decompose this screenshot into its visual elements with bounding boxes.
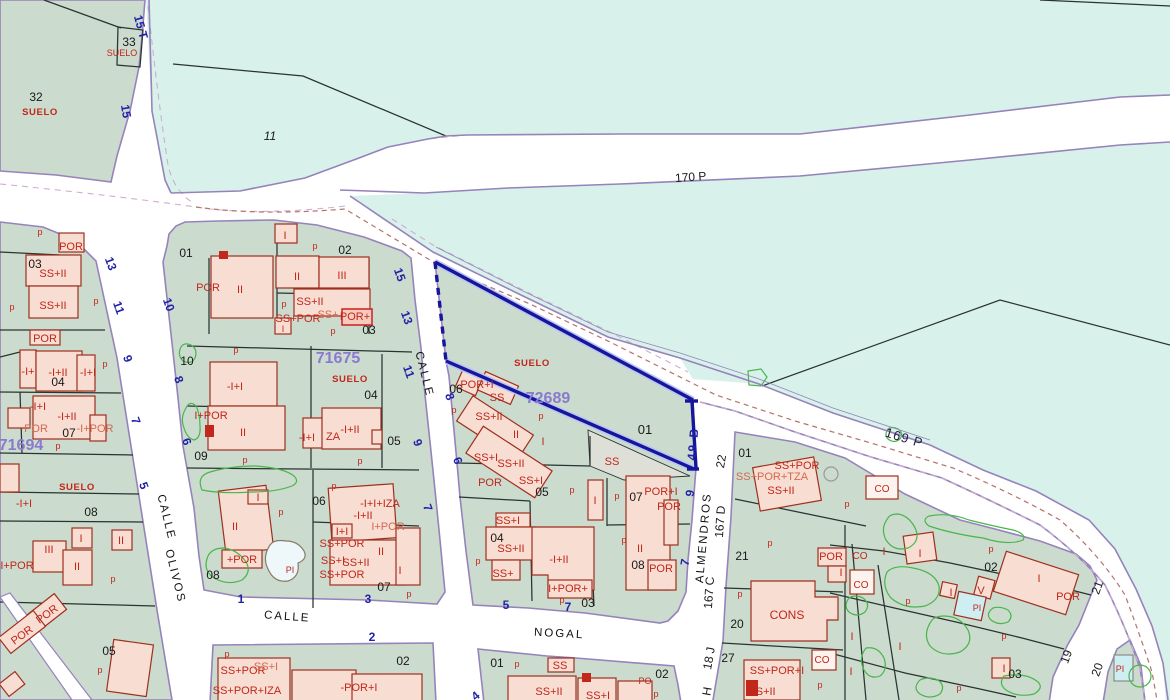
svg-text:-POR+I: -POR+I <box>341 682 378 694</box>
svg-text:p: p <box>817 680 822 690</box>
svg-text:167 C: 167 C <box>701 576 717 609</box>
svg-text:I: I <box>79 533 82 545</box>
svg-text:POR+: POR+ <box>340 311 370 323</box>
svg-text:p: p <box>621 535 626 545</box>
svg-text:SS+II: SS+II <box>342 557 369 569</box>
svg-text:-I+II: -I+II <box>549 554 568 566</box>
svg-text:p: p <box>406 589 411 599</box>
svg-text:72689: 72689 <box>526 390 571 407</box>
svg-text:p: p <box>988 544 993 554</box>
svg-text:p: p <box>956 683 961 693</box>
svg-text:01: 01 <box>490 656 504 670</box>
svg-text:33: 33 <box>122 35 136 49</box>
svg-text:I: I <box>1037 573 1040 585</box>
svg-text:p: p <box>357 456 362 466</box>
svg-text:SS+: SS+ <box>317 309 338 321</box>
svg-text:+POR: +POR <box>227 554 257 566</box>
svg-text:SUELO: SUELO <box>59 482 95 493</box>
svg-text:I: I <box>256 492 259 504</box>
svg-text:SS+: SS+ <box>492 568 513 580</box>
svg-text:71694: 71694 <box>0 437 43 454</box>
svg-text:II: II <box>240 427 246 439</box>
svg-text:22: 22 <box>713 453 729 469</box>
svg-text:-I+I: -I+I <box>227 381 243 393</box>
svg-text:15: 15 <box>118 104 134 120</box>
svg-text:SS+POR+I: SS+POR+I <box>750 665 804 677</box>
svg-text:p: p <box>224 649 229 659</box>
svg-text:03: 03 <box>581 596 595 610</box>
svg-text:I+POR: I+POR <box>371 521 404 533</box>
svg-text:p: p <box>97 665 102 675</box>
svg-text:I: I <box>282 324 285 334</box>
svg-text:NOGAL: NOGAL <box>534 627 585 642</box>
svg-text:POR: POR <box>24 423 48 435</box>
svg-text:02: 02 <box>655 667 669 681</box>
svg-text:9: 9 <box>120 353 136 364</box>
svg-text:SUELO: SUELO <box>514 358 550 369</box>
svg-text:PI: PI <box>286 565 295 575</box>
svg-text:p: p <box>93 296 98 306</box>
svg-text:POR: POR <box>819 551 843 563</box>
svg-text:07: 07 <box>377 580 391 594</box>
svg-text:03: 03 <box>1008 667 1022 681</box>
svg-text:p: p <box>514 659 519 669</box>
svg-text:SS: SS <box>490 392 505 404</box>
svg-text:11: 11 <box>264 129 276 143</box>
svg-text:II: II <box>232 521 238 533</box>
svg-text:71675: 71675 <box>316 350 361 367</box>
svg-text:I: I <box>918 548 921 560</box>
svg-text:170 P: 170 P <box>675 169 707 185</box>
svg-text:II: II <box>637 543 643 555</box>
svg-text:I+POR+: I+POR+ <box>548 583 588 595</box>
svg-text:III: III <box>44 544 53 556</box>
svg-text:11: 11 <box>110 299 128 316</box>
svg-text:POR: POR <box>649 563 673 575</box>
svg-text:I: I <box>541 436 544 448</box>
svg-text:09: 09 <box>194 449 208 463</box>
svg-text:p: p <box>330 326 335 336</box>
svg-text:I: I <box>839 567 842 579</box>
svg-text:2: 2 <box>369 630 376 644</box>
svg-text:-I+II: -I+II <box>48 367 67 379</box>
svg-text:p: p <box>767 538 772 548</box>
svg-text:I: I <box>882 546 885 558</box>
svg-text:PI: PI <box>1116 664 1125 674</box>
svg-text:1: 1 <box>238 592 245 606</box>
svg-text:p: p <box>1001 631 1006 641</box>
svg-text:p: p <box>331 481 336 491</box>
svg-text:I: I <box>398 565 401 577</box>
svg-text:CO: CO <box>854 580 869 591</box>
svg-text:p: p <box>569 485 574 495</box>
svg-text:20: 20 <box>1088 661 1106 679</box>
svg-text:05: 05 <box>535 485 549 499</box>
svg-text:SS+II: SS+II <box>497 458 524 470</box>
svg-text:PO: PO <box>638 676 651 686</box>
svg-text:04: 04 <box>364 388 378 402</box>
svg-text:SS+II: SS+II <box>296 296 323 308</box>
svg-text:I: I <box>849 666 852 678</box>
svg-text:I: I <box>593 495 596 507</box>
svg-text:3: 3 <box>365 592 372 606</box>
svg-text:07: 07 <box>62 426 76 440</box>
svg-text:-I+I: -I+I <box>299 432 315 444</box>
svg-text:SS+I: SS+I <box>519 475 543 487</box>
svg-text:5: 5 <box>503 598 510 612</box>
svg-text:H: H <box>699 686 714 697</box>
svg-text:-I+II: -I+II <box>57 411 76 423</box>
svg-text:II: II <box>513 429 519 441</box>
svg-text:III: III <box>337 270 346 282</box>
svg-text:05: 05 <box>387 434 401 448</box>
svg-text:SS+II: SS+II <box>497 543 524 555</box>
svg-text:01: 01 <box>738 446 752 460</box>
svg-text:II: II <box>237 284 243 296</box>
svg-text:p: p <box>844 499 849 509</box>
svg-text:7: 7 <box>565 600 572 614</box>
svg-text:-I+I: -I+I <box>80 367 96 379</box>
svg-text:CALLE: CALLE <box>154 493 177 541</box>
svg-text:p: p <box>281 299 286 309</box>
svg-text:I: I <box>949 587 952 599</box>
svg-text:-I+II: -I+II <box>353 510 372 522</box>
svg-text:I: I <box>1002 663 1005 675</box>
svg-text:POR+I: POR+I <box>460 379 493 391</box>
svg-text:SS: SS <box>553 660 568 672</box>
svg-text:p: p <box>559 595 564 605</box>
svg-text:SS+POR+TZA: SS+POR+TZA <box>736 471 809 483</box>
svg-text:V: V <box>977 585 985 597</box>
svg-text:CALLE: CALLE <box>264 609 311 624</box>
svg-text:p: p <box>312 241 317 251</box>
svg-text:I: I <box>850 631 853 643</box>
svg-text:32: 32 <box>29 90 43 104</box>
svg-text:I: I <box>898 641 901 653</box>
svg-text:CO: CO <box>875 484 890 495</box>
svg-text:4: 4 <box>468 688 482 700</box>
svg-text:p: p <box>475 556 480 566</box>
svg-text:II: II <box>294 271 300 283</box>
svg-text:CO: CO <box>853 551 868 562</box>
svg-text:167 D: 167 D <box>712 505 728 538</box>
svg-text:08: 08 <box>84 505 98 519</box>
svg-text:SS+II: SS+II <box>475 411 502 423</box>
svg-text:SS+II: SS+II <box>748 686 775 698</box>
svg-text:POR: POR <box>1056 591 1080 603</box>
svg-text:POR: POR <box>33 333 57 345</box>
svg-text:05: 05 <box>102 644 116 658</box>
svg-text:p: p <box>55 441 60 451</box>
svg-text:SS+POR: SS+POR <box>320 569 365 581</box>
svg-text:SS+POR+IZA: SS+POR+IZA <box>213 685 282 697</box>
svg-text:ZA: ZA <box>326 431 341 443</box>
svg-text:p: p <box>653 689 658 699</box>
svg-text:02: 02 <box>984 560 998 574</box>
svg-text:18 J: 18 J <box>700 646 718 671</box>
svg-text:SS+II: SS+II <box>39 268 66 280</box>
svg-text:POR: POR <box>478 477 502 489</box>
svg-text:SS+POR: SS+POR <box>320 538 365 550</box>
svg-text:II: II <box>74 561 80 573</box>
svg-text:II: II <box>118 535 124 547</box>
svg-text:POR: POR <box>196 282 220 294</box>
svg-text:01: 01 <box>179 246 193 260</box>
svg-text:SS+I: SS+I <box>496 515 520 527</box>
svg-text:02: 02 <box>338 243 352 257</box>
svg-text:p: p <box>614 491 619 501</box>
svg-text:p: p <box>37 227 42 237</box>
svg-text:SS+I: SS+I <box>586 690 610 700</box>
svg-text:I+I: I+I <box>336 526 349 538</box>
svg-text:CO: CO <box>815 655 830 666</box>
svg-text:I+POR: I+POR <box>194 410 227 422</box>
svg-text:PI: PI <box>973 603 982 613</box>
svg-text:06: 06 <box>312 494 326 508</box>
svg-text:OLIVOS: OLIVOS <box>162 548 187 604</box>
svg-text:POR: POR <box>657 501 681 513</box>
svg-text:5: 5 <box>136 480 152 491</box>
svg-text:I: I <box>283 230 286 242</box>
svg-text:SUELO: SUELO <box>22 107 58 118</box>
svg-text:-I+I+IZA: -I+I+IZA <box>360 498 400 510</box>
svg-text:01: 01 <box>638 422 652 437</box>
svg-text:p: p <box>451 405 456 415</box>
svg-text:03: 03 <box>362 323 376 337</box>
svg-text:49 B: 49 B <box>685 426 702 460</box>
svg-text:20: 20 <box>730 617 744 631</box>
svg-text:10: 10 <box>180 354 194 368</box>
svg-text:p: p <box>102 359 107 369</box>
svg-text:SS: SS <box>605 456 620 468</box>
svg-text:p: p <box>242 455 247 465</box>
svg-text:-I+I: -I+I <box>16 498 32 510</box>
svg-text:SS+II: SS+II <box>39 300 66 312</box>
svg-text:SS+I: SS+I <box>474 452 498 464</box>
svg-text:POR: POR <box>59 241 83 253</box>
svg-text:SS+II: SS+II <box>767 485 794 497</box>
svg-text:08: 08 <box>631 558 645 572</box>
svg-text:p: p <box>233 345 238 355</box>
svg-text:p: p <box>278 507 283 517</box>
svg-text:p: p <box>905 596 910 606</box>
svg-text:SS+II: SS+II <box>535 686 562 698</box>
svg-text:7: 7 <box>128 415 144 426</box>
svg-text:07: 07 <box>629 490 643 504</box>
svg-text:SUELO: SUELO <box>107 48 138 58</box>
svg-text:SS+I: SS+I <box>254 661 278 673</box>
svg-text:-I+: -I+ <box>21 366 34 378</box>
svg-text:-I+II: -I+II <box>340 424 359 436</box>
svg-text:-I+POR: -I+POR <box>77 423 114 435</box>
svg-text:SUELO: SUELO <box>332 374 368 385</box>
svg-text:13: 13 <box>102 255 120 273</box>
svg-text:-I+I: -I+I <box>30 401 46 413</box>
svg-text:02: 02 <box>396 654 410 668</box>
svg-text:POR+I: POR+I <box>644 486 677 498</box>
svg-text:p: p <box>9 302 14 312</box>
svg-text:I+POR: I+POR <box>0 560 33 572</box>
svg-text:p: p <box>110 574 115 584</box>
svg-text:27: 27 <box>721 651 735 665</box>
svg-text:p: p <box>538 411 543 421</box>
svg-text:p: p <box>737 589 742 599</box>
svg-text:II: II <box>378 546 384 558</box>
svg-text:CONS: CONS <box>770 608 805 622</box>
svg-text:08: 08 <box>206 568 220 582</box>
svg-text:21: 21 <box>735 549 749 563</box>
